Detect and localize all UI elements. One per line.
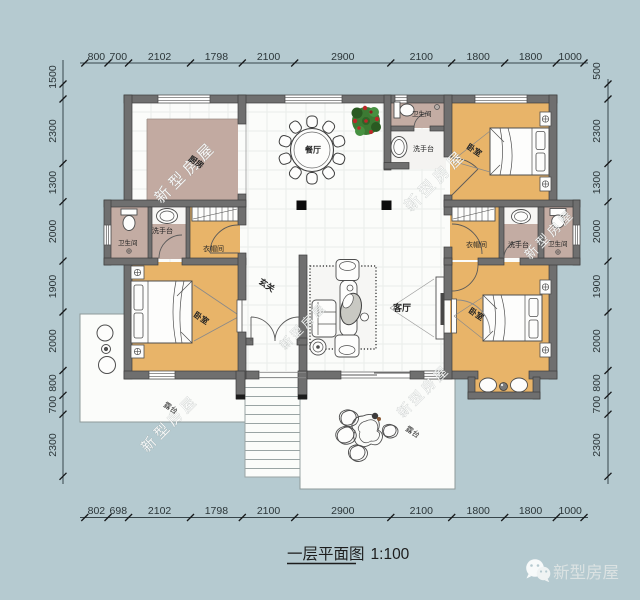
- svg-text:洗手台: 洗手台: [152, 226, 173, 235]
- svg-text:800: 800: [88, 51, 106, 63]
- svg-text:1500: 1500: [47, 65, 59, 89]
- svg-text:800: 800: [47, 374, 59, 392]
- svg-text:1798: 1798: [205, 505, 229, 517]
- svg-text:698: 698: [110, 505, 128, 517]
- svg-text:500: 500: [591, 62, 603, 80]
- svg-text:1000: 1000: [559, 51, 583, 63]
- svg-text:卫生间: 卫生间: [118, 238, 138, 247]
- svg-text:1800: 1800: [467, 505, 491, 517]
- svg-text:2300: 2300: [47, 433, 59, 457]
- svg-text:2100: 2100: [257, 505, 281, 517]
- svg-text:2000: 2000: [47, 329, 59, 353]
- svg-text:2000: 2000: [591, 329, 603, 353]
- svg-text:2100: 2100: [410, 51, 434, 63]
- svg-text:802: 802: [88, 505, 106, 517]
- svg-text:洗手台: 洗手台: [508, 240, 529, 249]
- svg-text:2900: 2900: [331, 51, 355, 63]
- svg-text:2300: 2300: [591, 433, 603, 457]
- svg-text:700: 700: [47, 396, 59, 414]
- svg-text:新型房屋: 新型房屋: [553, 563, 619, 582]
- svg-text:2000: 2000: [47, 220, 59, 244]
- svg-text:1900: 1900: [47, 275, 59, 299]
- svg-text:2100: 2100: [410, 505, 434, 517]
- svg-text:2300: 2300: [47, 119, 59, 143]
- svg-text:2102: 2102: [148, 51, 172, 63]
- svg-text:衣帽间: 衣帽间: [203, 244, 224, 253]
- svg-text:客厅: 客厅: [392, 302, 411, 313]
- svg-text:700: 700: [110, 51, 128, 63]
- svg-text:卫生间: 卫生间: [548, 239, 568, 248]
- svg-text:2300: 2300: [591, 119, 603, 143]
- svg-text:2102: 2102: [148, 505, 172, 517]
- svg-text:1800: 1800: [519, 51, 543, 63]
- svg-text:洗手台: 洗手台: [413, 144, 434, 153]
- svg-text:1300: 1300: [47, 171, 59, 195]
- svg-text:1800: 1800: [467, 51, 491, 63]
- svg-text:1798: 1798: [205, 51, 229, 63]
- svg-text:卫生间: 卫生间: [412, 109, 432, 118]
- svg-text:2100: 2100: [257, 51, 281, 63]
- svg-text:1300: 1300: [591, 171, 603, 195]
- svg-text:2900: 2900: [331, 505, 355, 517]
- svg-text:800: 800: [591, 374, 603, 392]
- svg-text:1900: 1900: [591, 275, 603, 299]
- svg-text:衣帽间: 衣帽间: [466, 240, 487, 249]
- svg-text:1800: 1800: [519, 505, 543, 517]
- svg-text:2000: 2000: [591, 220, 603, 244]
- svg-text:一层平面图1:100: 一层平面图1:100: [287, 546, 410, 563]
- svg-text:1000: 1000: [559, 505, 583, 517]
- svg-text:餐厅: 餐厅: [304, 145, 321, 155]
- svg-text:700: 700: [591, 396, 603, 414]
